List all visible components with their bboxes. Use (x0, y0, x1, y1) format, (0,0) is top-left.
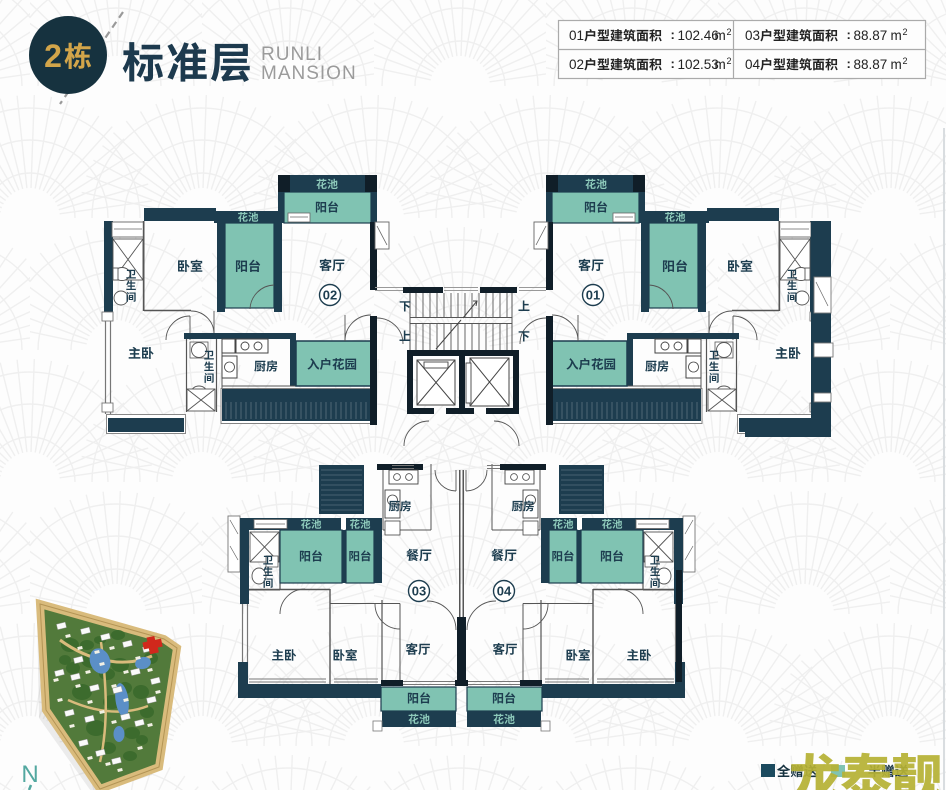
svg-text:RUNLI: RUNLI (261, 44, 323, 65)
svg-text::: : (671, 56, 675, 71)
svg-text:02: 02 (569, 57, 584, 72)
svg-text:88.87: 88.87 (854, 28, 888, 43)
svg-text::: : (847, 56, 851, 71)
svg-text:2: 2 (903, 27, 908, 37)
svg-text:m: m (715, 57, 726, 72)
svg-text:04: 04 (745, 57, 761, 72)
svg-text:01: 01 (569, 28, 584, 43)
svg-text:03: 03 (745, 28, 760, 43)
svg-text:2: 2 (727, 27, 732, 37)
svg-text:102.53: 102.53 (678, 57, 719, 72)
svg-text:01: 01 (586, 288, 600, 303)
svg-text:102.46: 102.46 (678, 28, 719, 43)
svg-text:m: m (891, 28, 902, 43)
svg-text:MANSION: MANSION (261, 63, 357, 84)
svg-text:2: 2 (903, 56, 908, 66)
svg-text:88.87: 88.87 (854, 57, 888, 72)
svg-text:2: 2 (44, 38, 62, 74)
svg-text:02: 02 (323, 288, 337, 303)
svg-text:03: 03 (412, 584, 426, 599)
svg-text::: : (847, 27, 851, 42)
svg-text:m: m (891, 57, 902, 72)
svg-text:m: m (715, 28, 726, 43)
svg-text::: : (671, 27, 675, 42)
svg-text:04: 04 (497, 584, 512, 599)
svg-text:N: N (21, 761, 38, 788)
svg-text:2: 2 (727, 56, 732, 66)
